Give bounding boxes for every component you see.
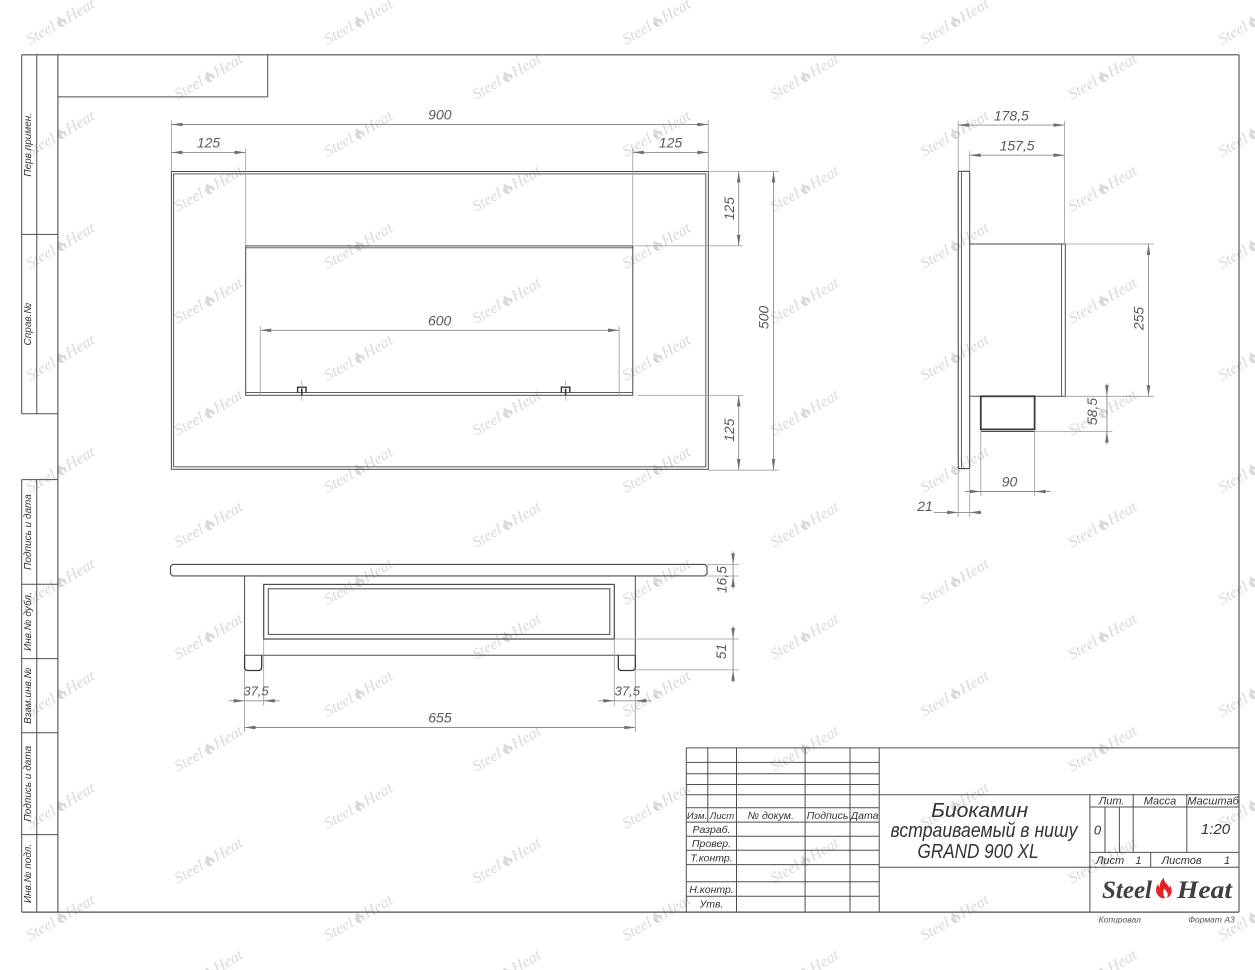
svg-text:Лист: Лист — [709, 811, 735, 822]
svg-text:1: 1 — [1135, 855, 1141, 867]
svg-text:Н.контр.: Н.контр. — [689, 884, 733, 896]
svg-text:Утв.: Утв. — [699, 898, 724, 910]
svg-text:Листов: Листов — [1161, 855, 1202, 867]
svg-text:Копировал: Копировал — [1099, 915, 1141, 925]
svg-text:Перв.примен.: Перв.примен. — [23, 113, 34, 177]
svg-text:Подпись и дата: Подпись и дата — [23, 745, 34, 821]
svg-text:21: 21 — [916, 498, 933, 514]
svg-text:0: 0 — [1094, 823, 1102, 838]
svg-text:Взам.инв.№: Взам.инв.№ — [23, 667, 34, 723]
svg-text:GRAND 900 XL: GRAND 900 XL — [918, 841, 1039, 863]
svg-text:37,5: 37,5 — [243, 683, 269, 698]
svg-text:Инв.№ дубл.: Инв.№ дубл. — [22, 592, 34, 651]
svg-text:Масштаб: Масштаб — [1187, 796, 1239, 808]
svg-text:1:20: 1:20 — [1201, 821, 1231, 838]
svg-text:125: 125 — [197, 135, 221, 151]
svg-text:600: 600 — [428, 312, 452, 328]
svg-text:58,5: 58,5 — [1084, 398, 1100, 425]
svg-text:16,5: 16,5 — [714, 566, 730, 593]
svg-text:37,5: 37,5 — [615, 683, 641, 698]
svg-text:255: 255 — [1131, 307, 1147, 332]
svg-text:178,5: 178,5 — [994, 107, 1029, 123]
svg-text:Масса: Масса — [1144, 796, 1177, 808]
svg-text:157,5: 157,5 — [1000, 137, 1035, 153]
svg-text:Лит.: Лит. — [1098, 796, 1125, 808]
svg-text:Изм.: Изм. — [687, 811, 707, 822]
svg-text:встраиваемый в нишу: встраиваемый в нишу — [891, 820, 1079, 842]
svg-text:Heat: Heat — [1176, 877, 1233, 904]
svg-text:Steel: Steel — [1102, 877, 1152, 904]
svg-text:125: 125 — [721, 418, 737, 442]
svg-text:Инв.№ подл.: Инв.№ подл. — [23, 844, 34, 903]
svg-text:Дата: Дата — [850, 810, 879, 822]
svg-text:Разраб.: Разраб. — [693, 824, 731, 836]
svg-text:900: 900 — [428, 107, 452, 123]
svg-text:51: 51 — [713, 644, 729, 660]
svg-text:Т.контр.: Т.контр. — [690, 852, 732, 864]
svg-text:1: 1 — [1224, 855, 1230, 867]
svg-text:90: 90 — [1002, 474, 1018, 490]
svg-text:Подпись и дата: Подпись и дата — [23, 494, 34, 570]
svg-text:500: 500 — [756, 306, 772, 330]
svg-text:125: 125 — [659, 135, 683, 151]
svg-text:655: 655 — [428, 709, 452, 725]
svg-text:125: 125 — [721, 197, 737, 221]
svg-text:Справ.№: Справ.№ — [23, 303, 34, 346]
svg-text:Формат А3: Формат А3 — [1188, 915, 1235, 925]
svg-text:№ докум.: № докум. — [748, 810, 794, 822]
svg-text:Биокамин: Биокамин — [931, 800, 1028, 822]
svg-text:Провер.: Провер. — [692, 838, 731, 850]
svg-text:Подпись: Подпись — [807, 810, 849, 822]
svg-text:Лист: Лист — [1095, 855, 1124, 867]
